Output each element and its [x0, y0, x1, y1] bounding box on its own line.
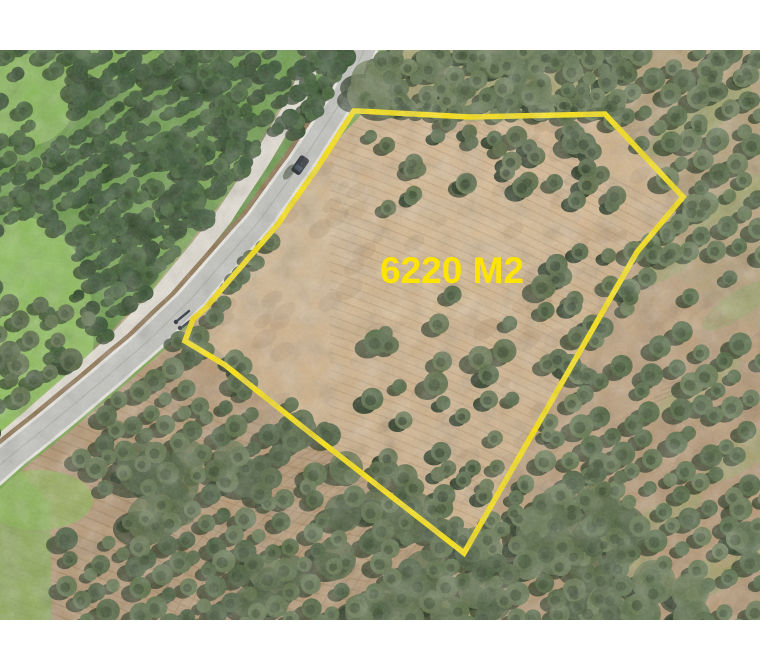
svg-text:6220 M2: 6220 M2 [380, 250, 524, 291]
